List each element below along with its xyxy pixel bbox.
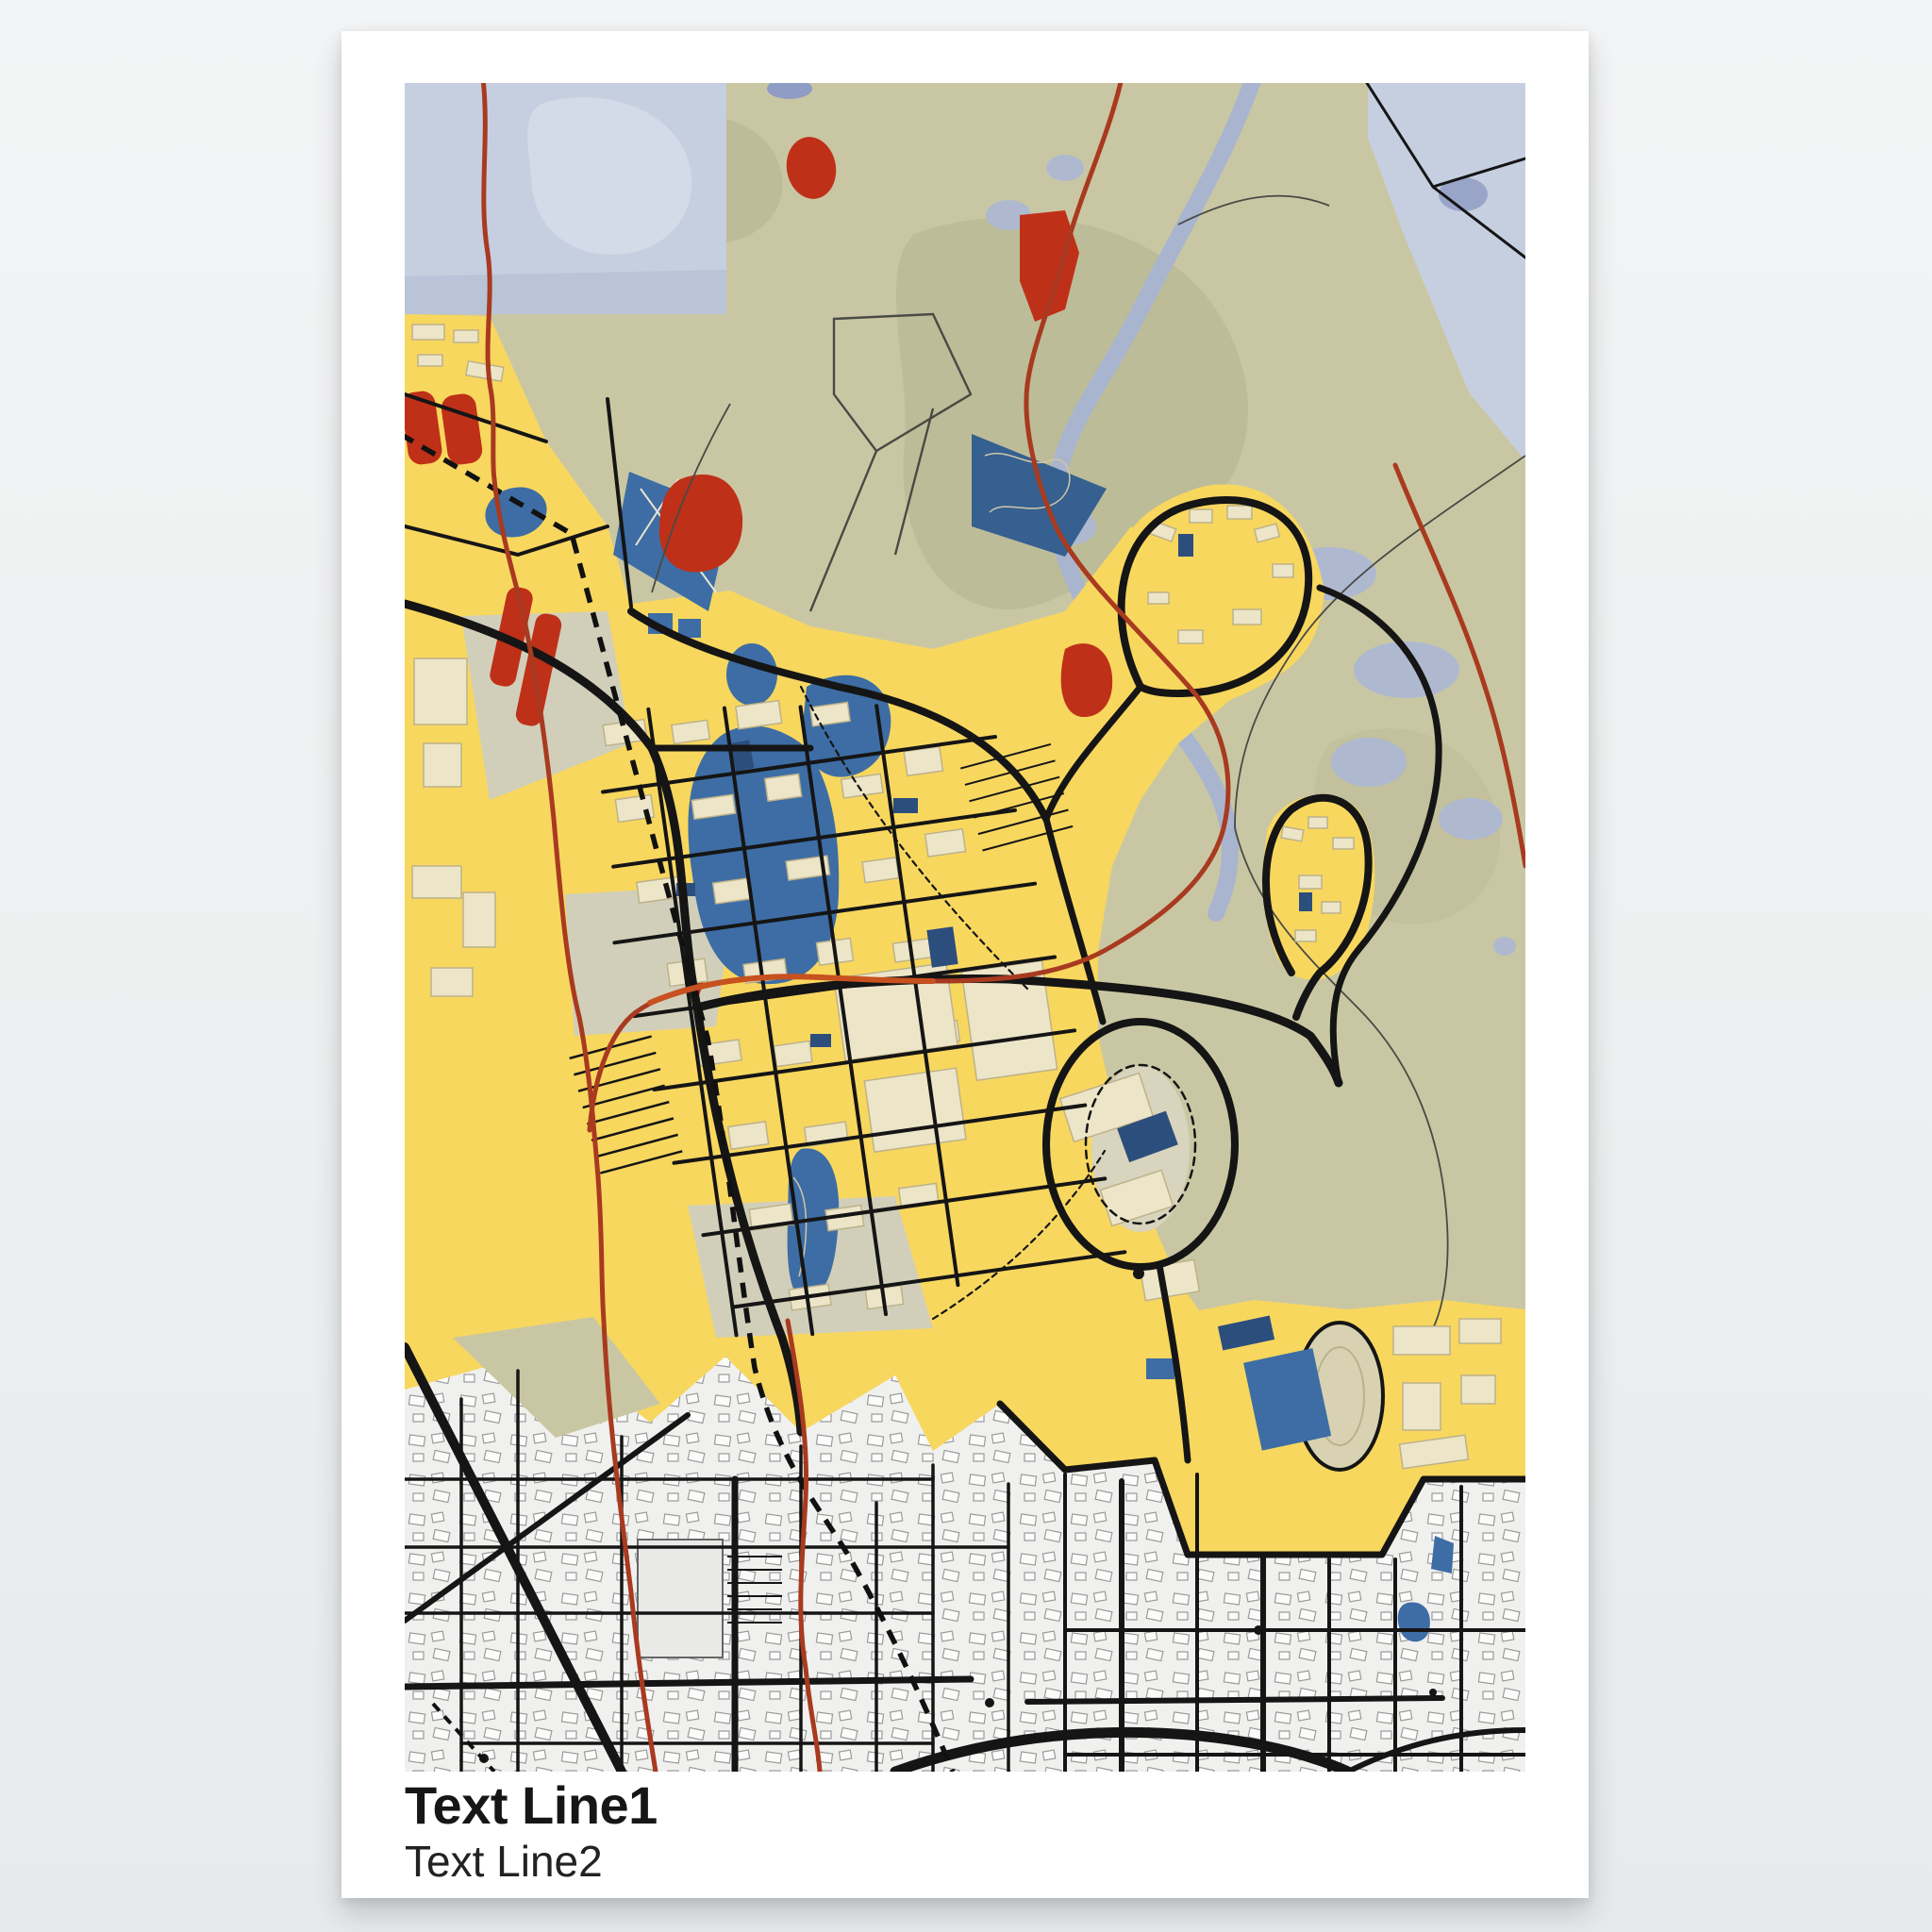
- map-graphic: [405, 83, 1525, 1772]
- caption-line2: Text Line2: [405, 1838, 1525, 1886]
- caption-line1: Text Line1: [405, 1778, 1525, 1834]
- map-frame: [405, 83, 1525, 1772]
- poster-caption: Text Line1 Text Line2: [405, 1778, 1525, 1885]
- map-poster: Text Line1 Text Line2: [341, 31, 1589, 1898]
